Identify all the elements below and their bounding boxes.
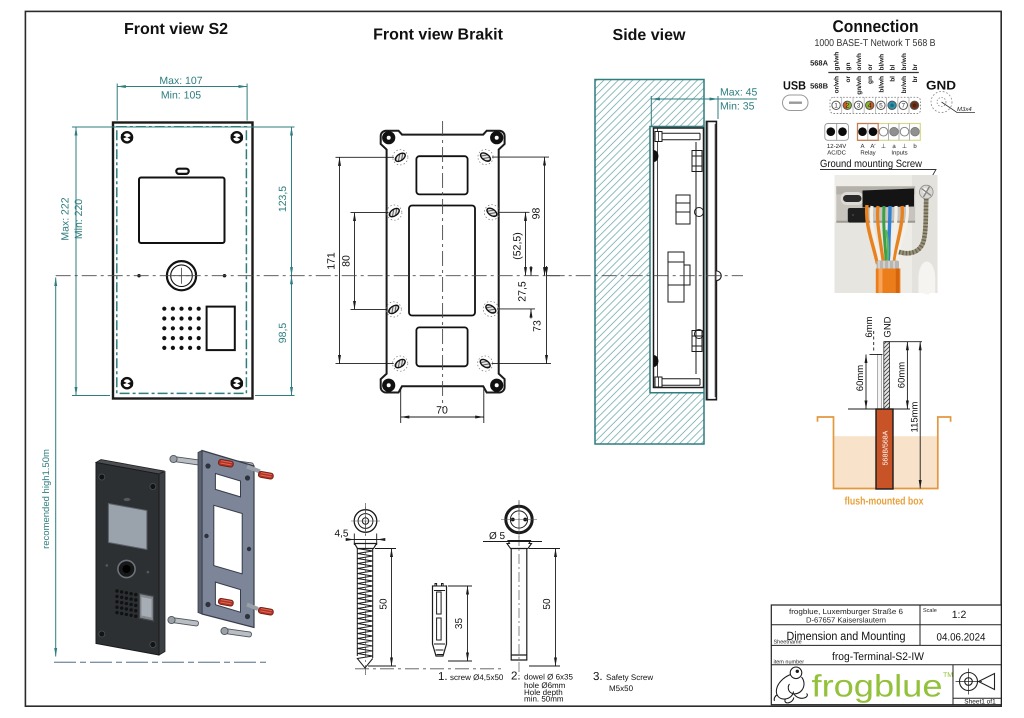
svg-text:frog-Terminal-S2-IW: frog-Terminal-S2-IW xyxy=(832,651,925,663)
svg-text:⊥: ⊥ xyxy=(881,143,886,150)
svg-text:M3x4: M3x4 xyxy=(957,106,972,113)
svg-text:min. 50mm: min. 50mm xyxy=(524,695,564,704)
svg-text:Max: 45: Max: 45 xyxy=(720,87,758,99)
svg-text:item number: item number xyxy=(774,659,805,665)
svg-text:2.: 2. xyxy=(511,671,521,683)
svg-text:1000 BASE-T Network T 568 B: 1000 BASE-T Network T 568 B xyxy=(815,38,936,49)
svg-text:80: 80 xyxy=(341,255,353,267)
svg-text:60mm: 60mm xyxy=(897,362,908,388)
svg-text:35: 35 xyxy=(454,618,465,630)
svg-text:Sheet1 of1: Sheet1 of1 xyxy=(964,699,996,706)
svg-text:recomended high1.50m: recomended high1.50m xyxy=(41,449,52,549)
svg-text:Max: 107: Max: 107 xyxy=(159,75,202,87)
svg-text:Connection: Connection xyxy=(833,17,919,36)
svg-text:A′: A′ xyxy=(870,143,876,150)
svg-text:br/wh: br/wh xyxy=(901,76,908,93)
svg-text:Side view: Side view xyxy=(613,27,686,44)
svg-text:568A: 568A xyxy=(810,59,829,68)
svg-text:4,5: 4,5 xyxy=(335,529,349,540)
svg-text:1:2: 1:2 xyxy=(952,609,967,621)
svg-text:50: 50 xyxy=(542,598,553,610)
svg-text:12-24V: 12-24V xyxy=(827,143,846,150)
svg-text:a: a xyxy=(892,144,896,150)
svg-text:70: 70 xyxy=(436,405,448,417)
svg-text:Front view S2: Front view S2 xyxy=(124,21,228,38)
svg-text:USB: USB xyxy=(783,79,806,93)
svg-text:123,5: 123,5 xyxy=(277,186,289,212)
svg-text:or: or xyxy=(867,64,874,71)
svg-text:Ø 5: Ø 5 xyxy=(489,531,506,542)
svg-text:2: 2 xyxy=(845,103,849,110)
svg-text:04.06.2024: 04.06.2024 xyxy=(937,632,986,644)
svg-text:50: 50 xyxy=(379,598,390,610)
svg-text:TM: TM xyxy=(943,672,953,679)
svg-text:5: 5 xyxy=(879,103,883,110)
svg-text:Min: 220: Min: 220 xyxy=(73,199,85,239)
svg-text:br: br xyxy=(912,76,919,83)
svg-text:Min: 35: Min: 35 xyxy=(720,101,755,113)
svg-text:4: 4 xyxy=(868,103,872,110)
svg-text:Dimension and Mounting: Dimension and Mounting xyxy=(787,629,906,643)
svg-text:b: b xyxy=(913,143,917,150)
svg-text:1: 1 xyxy=(834,103,838,110)
svg-text:gn/wh: gn/wh xyxy=(856,76,863,95)
svg-text:7: 7 xyxy=(901,103,905,110)
svg-text:Safety Screw: Safety Screw xyxy=(606,673,653,682)
svg-text:frogblue: frogblue xyxy=(812,669,943,704)
svg-text:A: A xyxy=(860,143,864,150)
svg-text:gn: gn xyxy=(867,76,874,84)
svg-text:3: 3 xyxy=(857,103,861,110)
svg-text:Sheetname: Sheetname xyxy=(774,640,802,646)
svg-text:Ground mounting Screw: Ground mounting Screw xyxy=(820,158,922,170)
svg-text:98,5: 98,5 xyxy=(277,323,289,344)
svg-text:flush-mounted box: flush-mounted box xyxy=(845,496,925,508)
svg-text:Max: 222: Max: 222 xyxy=(60,197,72,240)
svg-text:98: 98 xyxy=(531,208,543,220)
svg-text:3.: 3. xyxy=(593,671,603,683)
svg-text:bl: bl xyxy=(890,65,897,71)
svg-text:M5x50: M5x50 xyxy=(609,684,634,693)
svg-text:Scale: Scale xyxy=(923,608,937,614)
svg-text:bl: bl xyxy=(890,76,897,82)
svg-text:gn: gn xyxy=(845,63,852,71)
svg-text:screw Ø4,5x50: screw Ø4,5x50 xyxy=(450,673,504,682)
svg-text:D-67657 Kaiserslautern: D-67657 Kaiserslautern xyxy=(806,616,886,625)
svg-text:br/wh: br/wh xyxy=(901,53,908,70)
svg-text:⊥: ⊥ xyxy=(902,143,907,150)
svg-text:bl/wh: bl/wh xyxy=(878,76,885,93)
svg-text:br: br xyxy=(912,64,919,71)
svg-text:(52,5): (52,5) xyxy=(512,232,524,259)
svg-text:gn/wh: gn/wh xyxy=(834,52,841,71)
svg-text:bl/wh: bl/wh xyxy=(878,54,885,71)
svg-text:Min: 105: Min: 105 xyxy=(161,90,201,102)
svg-text:GND: GND xyxy=(882,316,893,337)
svg-text:73: 73 xyxy=(532,320,544,332)
svg-text:Relay: Relay xyxy=(860,150,875,157)
svg-text:171: 171 xyxy=(326,252,338,270)
svg-text:AC/DC: AC/DC xyxy=(827,150,846,157)
svg-text:115mm: 115mm xyxy=(910,401,921,432)
svg-text:Inputs: Inputs xyxy=(891,150,907,157)
svg-text:or: or xyxy=(845,76,852,83)
svg-text:or/wh: or/wh xyxy=(834,76,841,93)
svg-text:568B: 568B xyxy=(810,82,829,91)
svg-text:or/wh: or/wh xyxy=(856,53,863,70)
svg-text:1.: 1. xyxy=(438,671,448,683)
svg-text:27,5: 27,5 xyxy=(517,281,529,302)
svg-text:568B/568A: 568B/568A xyxy=(881,430,889,465)
svg-text:GND: GND xyxy=(926,79,956,93)
svg-text:Front view Brakit: Front view Brakit xyxy=(373,27,503,44)
svg-text:60mm: 60mm xyxy=(855,365,866,391)
svg-text:6mm: 6mm xyxy=(864,316,875,337)
